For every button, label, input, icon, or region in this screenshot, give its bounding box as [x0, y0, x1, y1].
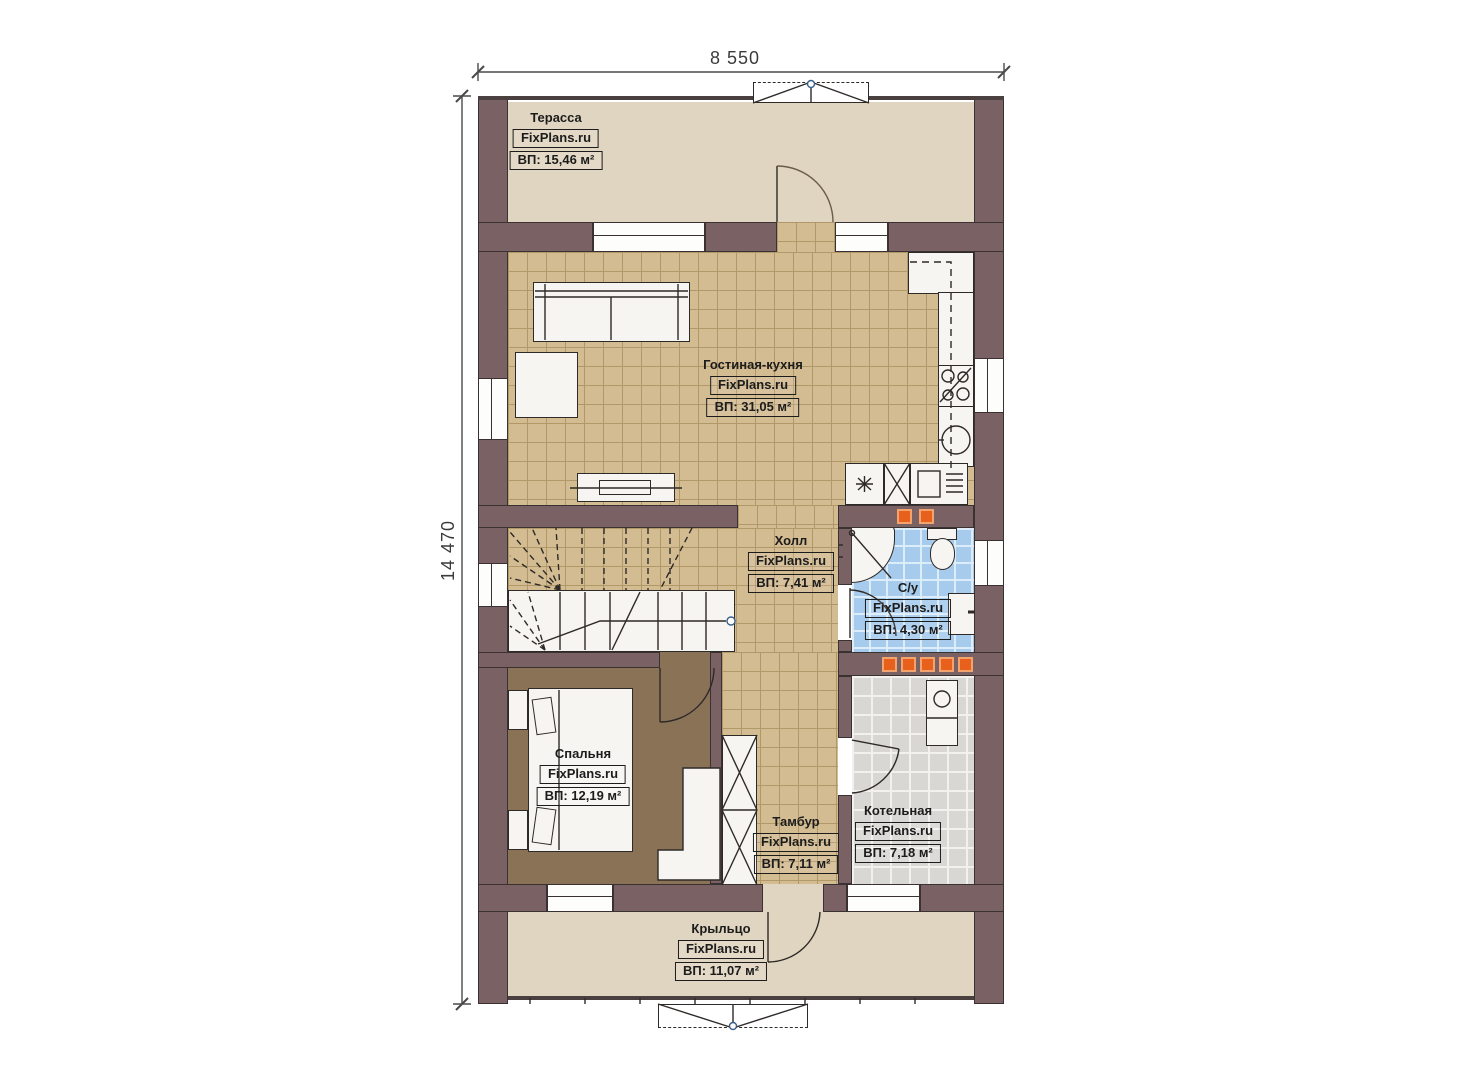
room-name: Тамбур	[753, 815, 839, 830]
brand-box: FixPlans.ru	[865, 599, 951, 618]
room-name: Холл	[748, 534, 834, 549]
door-boiler-room	[852, 740, 899, 793]
dimension-width-label: 8 550	[710, 48, 760, 69]
fridge-snowflake-icon	[856, 476, 873, 492]
stove-burners-icon	[940, 368, 971, 402]
staircase	[510, 528, 735, 650]
boiler-icon	[926, 691, 958, 718]
room-name: Крыльцо	[675, 922, 767, 937]
brand-box: FixPlans.ru	[513, 129, 599, 148]
entry-steps-glyph-top	[753, 81, 869, 104]
room-label-terrace: Терасса FixPlans.ru ВП: 15,46 м²	[510, 111, 603, 170]
upper-cabinets-dashed	[910, 262, 951, 468]
room-label-vestibule: Тамбур FixPlans.ru ВП: 7,11 м²	[753, 815, 839, 874]
shower-icon	[839, 531, 891, 579]
door-bedroom	[660, 668, 714, 722]
door-vestibule-porch	[768, 912, 820, 962]
area-box: ВП: 11,07 м²	[675, 962, 767, 981]
sink-icon	[938, 426, 970, 454]
room-name: Спальня	[537, 747, 630, 762]
sofa-lines	[535, 284, 688, 340]
area-box: ВП: 12,19 м²	[537, 787, 630, 806]
floor-plan-canvas: 8 550 14 470 Терасса FixPlans.ru ВП: 15,…	[0, 0, 1473, 1080]
area-box: ВП: 15,46 м²	[510, 151, 603, 170]
room-label-bathroom: С/у FixPlans.ru ВП: 4,30 м²	[865, 581, 951, 640]
dimension-lines	[453, 63, 1010, 1010]
brand-box: FixPlans.ru	[753, 833, 839, 852]
cabinet-x-icon	[884, 463, 910, 505]
room-name: Гостиная-кухня	[703, 358, 803, 373]
area-box: ВП: 7,18 м²	[855, 844, 941, 863]
brand-box: FixPlans.ru	[678, 940, 764, 959]
closet-l-shape	[658, 768, 720, 880]
area-box: ВП: 4,30 м²	[865, 621, 951, 640]
entry-steps-glyph-bottom	[658, 1004, 808, 1030]
brand-box: FixPlans.ru	[855, 822, 941, 841]
room-label-boiler-room: Котельная FixPlans.ru ВП: 7,18 м²	[855, 804, 941, 863]
room-name: Терасса	[510, 111, 603, 126]
brand-box: FixPlans.ru	[748, 552, 834, 571]
brand-box: FixPlans.ru	[540, 765, 626, 784]
room-name: Котельная	[855, 804, 941, 819]
dimension-height-label: 14 470	[438, 520, 459, 581]
room-label-hall: Холл FixPlans.ru ВП: 7,41 м²	[748, 534, 834, 593]
room-label-bedroom: Спальня FixPlans.ru ВП: 12,19 м²	[537, 747, 630, 806]
area-box: ВП: 7,11 м²	[754, 855, 839, 874]
area-box: ВП: 7,41 м²	[748, 574, 834, 593]
brand-box: FixPlans.ru	[710, 376, 796, 395]
door-living-terrace	[777, 166, 833, 222]
area-box: ВП: 31,05 м²	[707, 398, 800, 417]
dishwasher-icon	[918, 471, 963, 497]
wardrobe-x-icon	[722, 735, 757, 885]
porch-edge-ticks	[530, 998, 915, 1004]
room-label-living-kitchen: Гостиная-кухня FixPlans.ru ВП: 31,05 м²	[703, 358, 803, 417]
room-label-porch: Крыльцо FixPlans.ru ВП: 11,07 м²	[675, 922, 767, 981]
room-name: С/у	[865, 581, 951, 596]
plan-linework	[0, 0, 1473, 1080]
